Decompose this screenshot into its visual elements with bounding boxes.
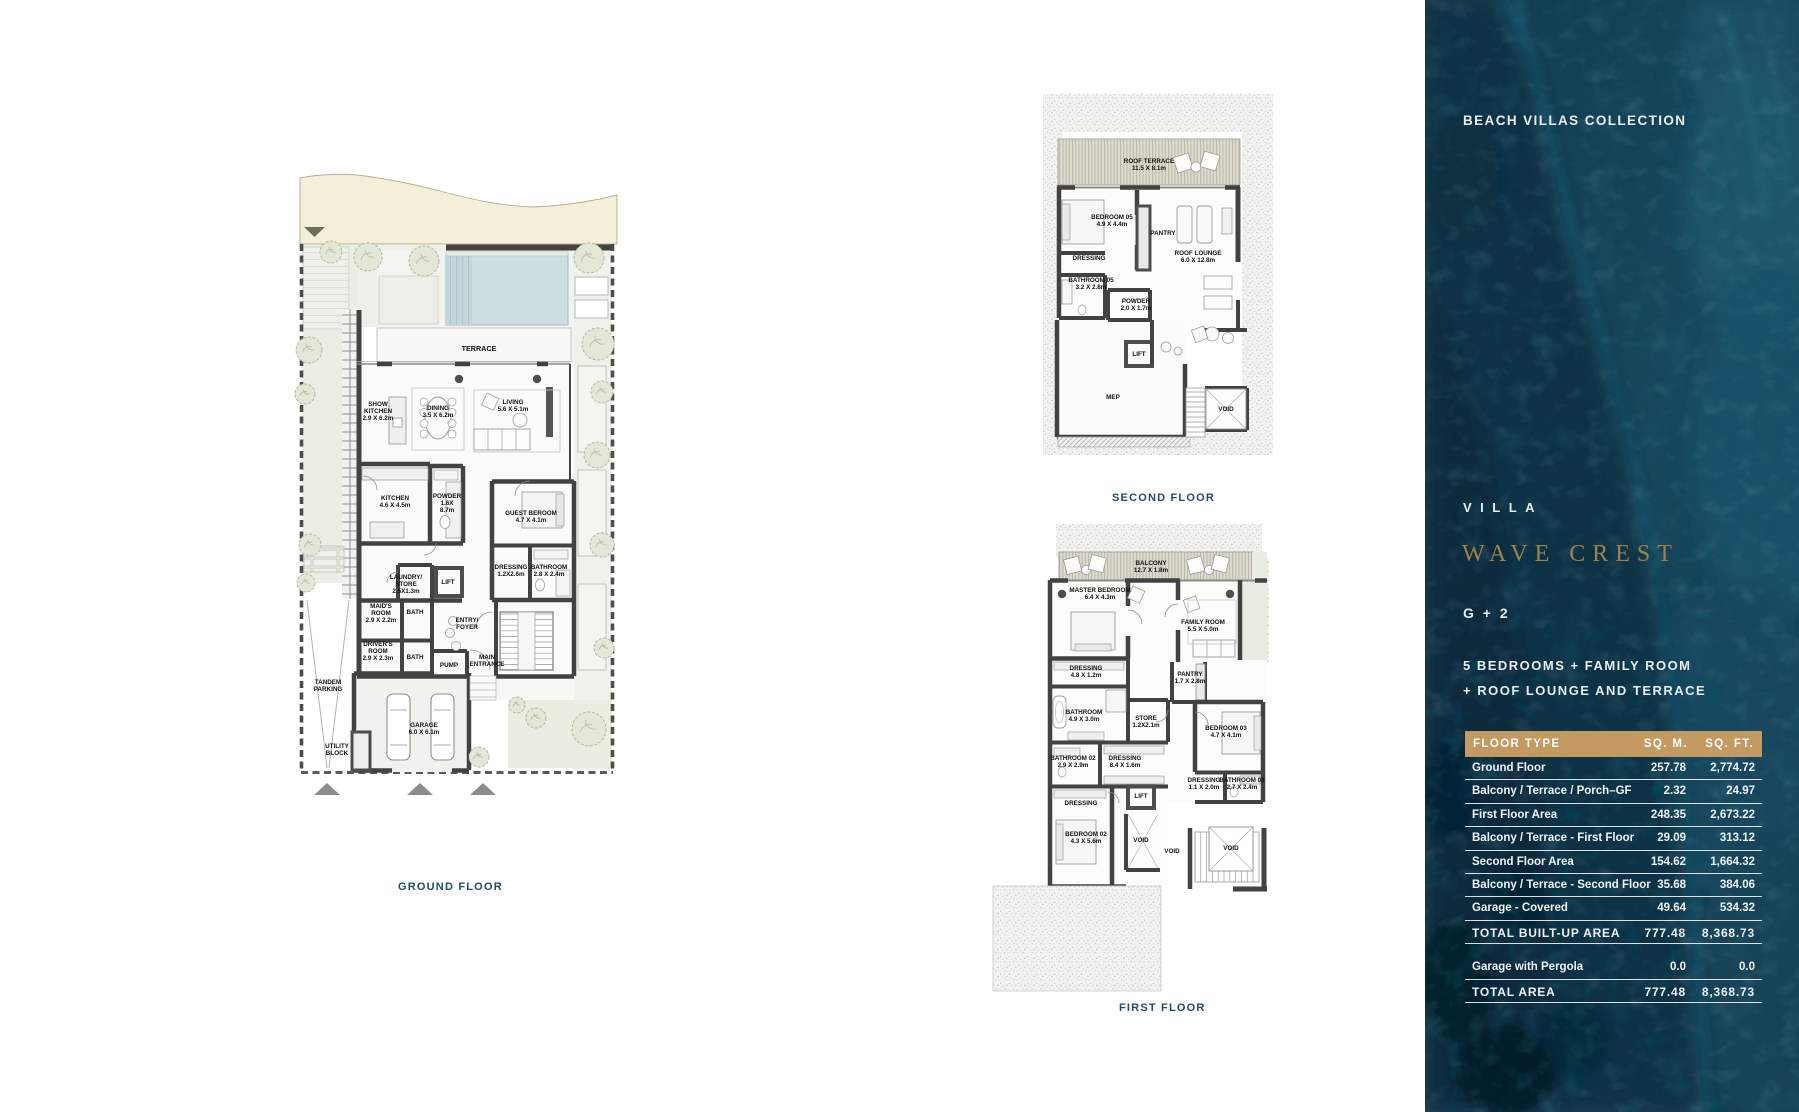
svg-text:VOID: VOID [1133, 837, 1149, 844]
svg-text:FAMILY ROOM5.5 X 5.0m: FAMILY ROOM5.5 X 5.0m [1181, 619, 1225, 633]
svg-text:BEDROOM 054.9 X 4.4m: BEDROOM 054.9 X 4.4m [1091, 214, 1133, 228]
svg-text:STORE1.2X2.1m: STORE1.2X2.1m [1132, 715, 1160, 729]
svg-text:BALCONY12.7 X 1.8m: BALCONY12.7 X 1.8m [1134, 560, 1169, 574]
svg-text:PANTRY: PANTRY [1150, 230, 1176, 237]
svg-text:ENTRY/FOYER: ENTRY/FOYER [456, 617, 479, 631]
svg-text:BATHROOM4.9 X 3.0m: BATHROOM4.9 X 3.0m [1066, 709, 1103, 723]
svg-text:LIFT: LIFT [1132, 351, 1145, 358]
svg-text:VOID: VOID [1218, 406, 1234, 413]
svg-text:VOID: VOID [1164, 848, 1180, 855]
svg-text:BEDROOM 034.7 X 4.1m: BEDROOM 034.7 X 4.1m [1205, 725, 1247, 739]
svg-text:DRESSING4.8 X 1.2m: DRESSING4.8 X 1.2m [1070, 665, 1103, 679]
svg-text:POWDER2.0 X 1.7m: POWDER2.0 X 1.7m [1121, 298, 1152, 312]
svg-text:ROOF LOUNGE6.0 X 12.8m: ROOF LOUNGE6.0 X 12.8m [1175, 250, 1222, 264]
svg-text:DRESSING: DRESSING [1065, 800, 1098, 807]
svg-text:MEP: MEP [1106, 394, 1120, 401]
svg-text:GARAGE6.0 X 6.1m: GARAGE6.0 X 6.1m [409, 722, 440, 736]
svg-text:BATH: BATH [406, 654, 423, 661]
svg-text:BATHROOM2.8 X 2.4m: BATHROOM2.8 X 2.4m [531, 564, 568, 578]
svg-text:DRESSING1.1 X 2.0m: DRESSING1.1 X 2.0m [1188, 777, 1221, 791]
svg-text:BEDROOM 024.3 X 5.6m: BEDROOM 024.3 X 5.6m [1065, 831, 1107, 845]
svg-text:TANDEMPARKING: TANDEMPARKING [314, 679, 343, 693]
svg-text:UTILITYBLOCK: UTILITYBLOCK [325, 743, 350, 757]
svg-text:BATH: BATH [406, 609, 423, 616]
svg-text:LIFT: LIFT [441, 579, 454, 586]
svg-text:PUMP: PUMP [440, 662, 458, 669]
svg-text:DRESSING: DRESSING [1073, 255, 1106, 262]
svg-text:LIFT: LIFT [1134, 793, 1147, 800]
svg-text:PANTRY1.7 X 2.8m: PANTRY1.7 X 2.8m [1175, 671, 1206, 685]
svg-text:DRESSING8.4 X 1.6m: DRESSING8.4 X 1.6m [1109, 755, 1142, 769]
svg-text:TERRACE: TERRACE [462, 344, 497, 353]
svg-text:KITCHEN4.6 X 4.5m: KITCHEN4.6 X 4.5m [380, 495, 411, 509]
svg-text:VOID: VOID [1223, 845, 1239, 852]
svg-text:DRESSING1.2X2.6m: DRESSING1.2X2.6m [495, 564, 528, 578]
